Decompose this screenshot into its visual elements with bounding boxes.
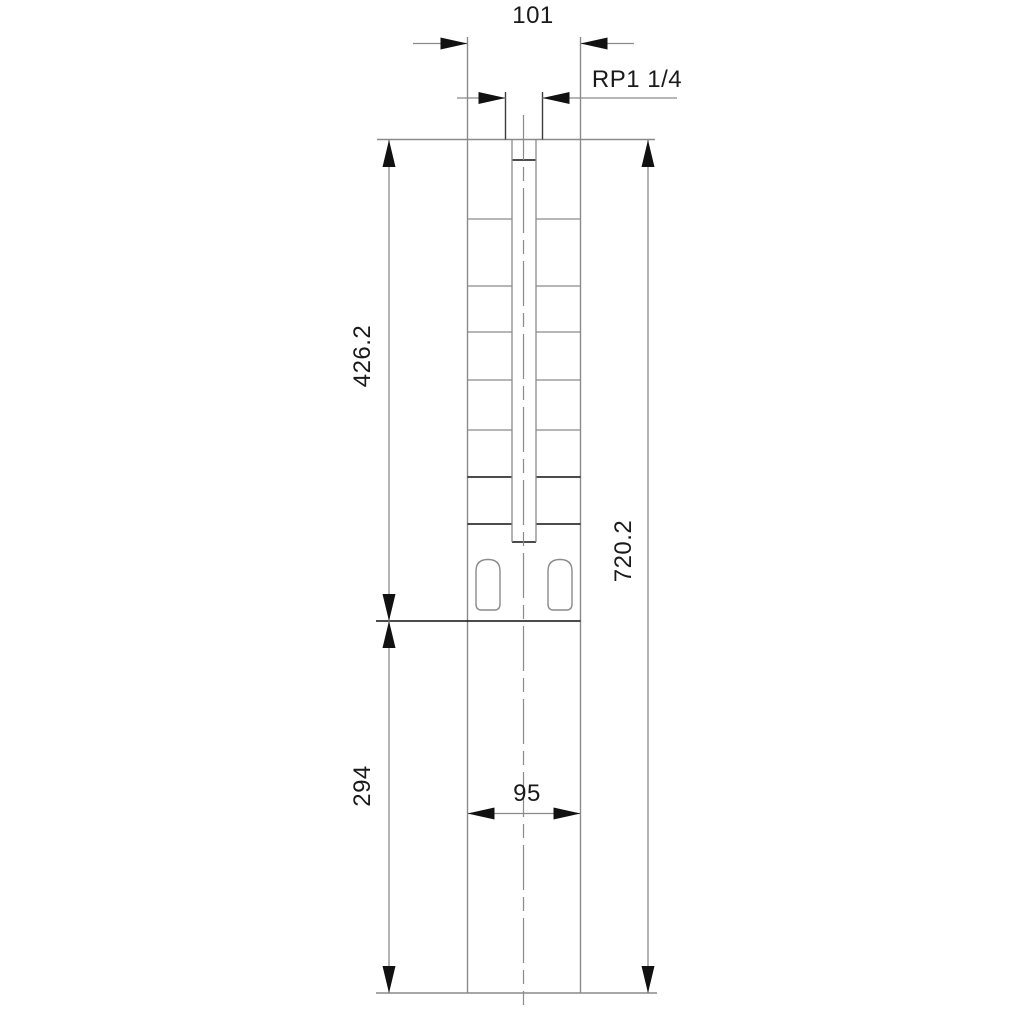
dimension-label-pump-section-height: 426.2 [351,325,375,388]
body-black-lines [376,160,581,621]
dimension-label-motor-section-height: 294 [351,765,375,807]
dimension-label-motor-width: 95 [513,782,541,806]
dimension-label-outlet-width: 101 [512,4,554,28]
dimension-label-total-height: 720.2 [612,520,636,583]
dimension-lines [389,44,677,994]
dimension-label-outlet-thread: RP1 1/4 [592,68,682,92]
pump-dimensional-drawing: 101 RP1 1/4 426.2 720.2 294 95 [0,0,1024,1024]
arrowheads [383,38,655,994]
drawing-canvas [0,0,1024,1024]
pump-body-outline [376,37,657,993]
